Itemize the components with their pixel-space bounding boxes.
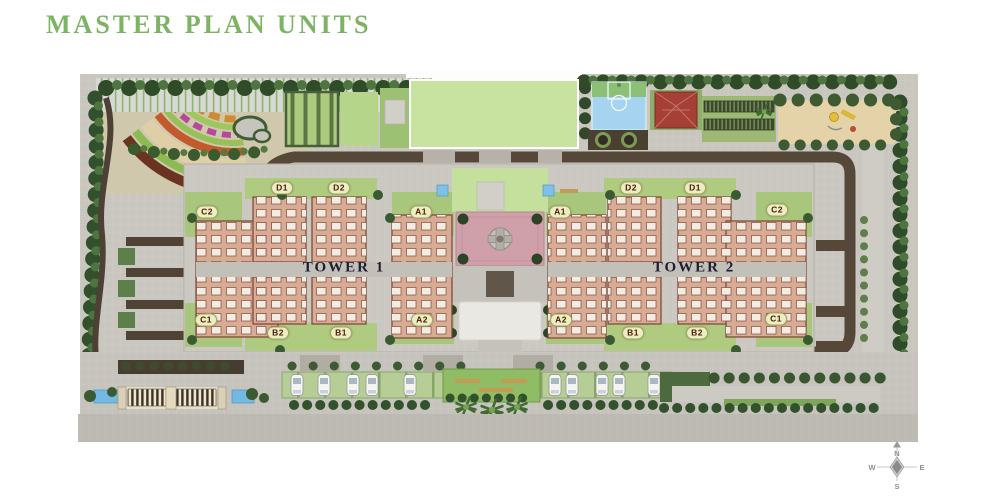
pergola-garden <box>702 96 776 142</box>
page-title: MASTER PLAN UNITS <box>46 10 372 40</box>
master-plan-page: N S E W MASTER PLAN UNITS TOWER 1 TOWER … <box>0 0 1000 500</box>
basketball-court <box>585 82 648 150</box>
public-road <box>78 414 918 442</box>
unit-label-t1-b2[interactable]: B2 <box>267 327 289 340</box>
unit-label-t1-d2[interactable]: D2 <box>328 182 350 195</box>
tower1-name: TOWER 1 <box>303 260 386 277</box>
unit-label-t2-d2[interactable]: D2 <box>620 182 642 195</box>
unit-label-t2-a1[interactable]: A1 <box>549 206 571 219</box>
compass-north-label: N <box>894 449 899 458</box>
tower2-name: TOWER 2 <box>653 260 736 277</box>
unit-label-t2-c1[interactable]: C1 <box>765 313 787 326</box>
unit-label-t2-a2[interactable]: A2 <box>550 314 572 327</box>
master-plan-illustration: N S E W <box>0 0 1000 500</box>
compass-east-label: E <box>919 463 924 472</box>
unit-label-t1-a1[interactable]: A1 <box>410 206 432 219</box>
garden-plots <box>286 88 410 148</box>
unit-label-t2-c2[interactable]: C2 <box>766 204 788 217</box>
unit-label-t1-d1[interactable]: D1 <box>271 182 293 195</box>
compass-south-label: S <box>894 482 899 491</box>
clubhouse <box>650 90 702 130</box>
unit-label-t2-b2[interactable]: B2 <box>686 327 708 340</box>
compass-rose: N S E W <box>868 441 924 491</box>
central-lawn <box>410 80 578 148</box>
compass-west-label: W <box>868 463 876 472</box>
unit-label-t1-c1[interactable]: C1 <box>195 314 217 327</box>
unit-label-t2-d1[interactable]: D1 <box>684 182 706 195</box>
unit-label-t1-b1[interactable]: B1 <box>330 327 352 340</box>
unit-label-t2-b1[interactable]: B1 <box>622 327 644 340</box>
unit-label-t1-a2[interactable]: A2 <box>411 314 433 327</box>
unit-label-t1-c2[interactable]: C2 <box>196 206 218 219</box>
